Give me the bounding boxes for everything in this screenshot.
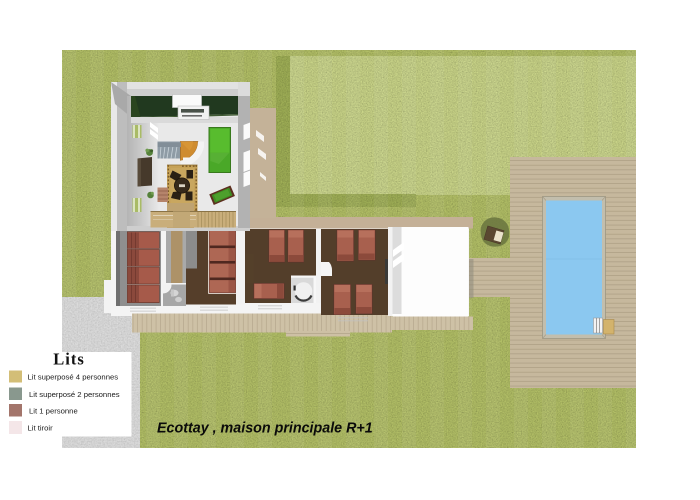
- svg-text:Lit superposé 4 personnes: Lit superposé 4 personnes: [28, 373, 119, 382]
- svg-text:Ecottay , maison principale R+: Ecottay , maison principale R+1: [157, 421, 373, 437]
- svg-text:Lit tiroir: Lit tiroir: [28, 424, 54, 433]
- svg-text:Lit superposé 2 personnes: Lit superposé 2 personnes: [29, 390, 120, 399]
- svg-text:Lit 1 personne: Lit 1 personne: [29, 407, 78, 416]
- svg-text:Lits: Lits: [53, 350, 85, 369]
